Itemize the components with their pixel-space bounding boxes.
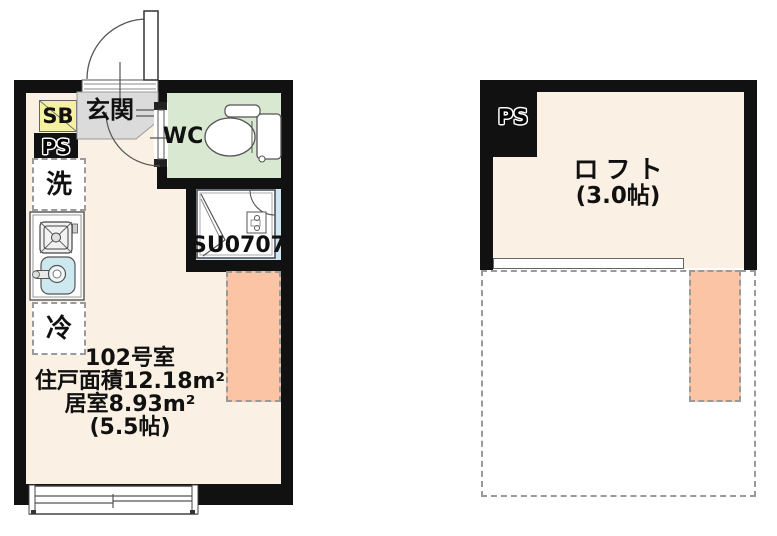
loft-label: ロフト bbox=[518, 155, 718, 183]
shower-mixer-icon bbox=[247, 212, 266, 233]
ps-label-unit: PS bbox=[34, 133, 78, 160]
stove-icon bbox=[40, 222, 78, 253]
ps-label-loft: PS bbox=[489, 102, 537, 132]
wc-label: WC bbox=[166, 125, 200, 149]
room-size: (5.5帖) bbox=[30, 413, 230, 436]
toilet-icon bbox=[205, 105, 281, 162]
unit-info-block: 102号室 住戸面積12.18m² 居室8.93m² (5.5帖) bbox=[30, 344, 230, 436]
entry-label: 玄関 bbox=[82, 97, 138, 123]
loft-size-label: (3.0帖) bbox=[518, 183, 718, 209]
floorplan-canvas: SB PS 玄関 WC 洗 冷 SU0707 102号室 住戸面積12.18m²… bbox=[0, 0, 777, 536]
shower-unit-label: SU0707 bbox=[196, 234, 281, 258]
washer-label: 洗 bbox=[32, 158, 86, 211]
window-icon bbox=[29, 485, 198, 514]
kitchen-icon bbox=[30, 212, 84, 300]
sb-label: SB bbox=[39, 100, 77, 132]
fixtures-overlay bbox=[0, 0, 777, 536]
